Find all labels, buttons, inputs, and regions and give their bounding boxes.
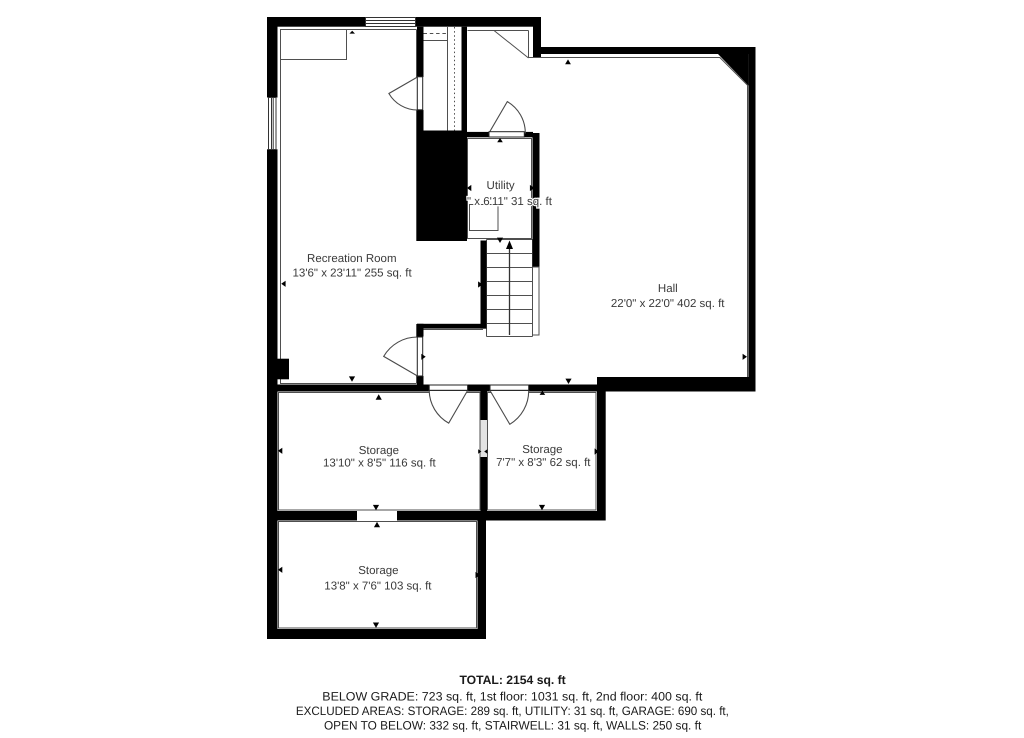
svg-text:7'7" x 8'3" 62 sq. ft: 7'7" x 8'3" 62 sq. ft	[496, 457, 591, 469]
svg-text:22'0" x 22'0" 402 sq. ft: 22'0" x 22'0" 402 sq. ft	[611, 298, 725, 310]
svg-text:" x 6'11" 31 sq. ft: " x 6'11" 31 sq. ft	[467, 196, 553, 208]
svg-text:13'10" x 8'5" 116 sq. ft: 13'10" x 8'5" 116 sq. ft	[323, 458, 437, 470]
svg-text:BELOW GRADE: 723 sq. ft, 1st f: BELOW GRADE: 723 sq. ft, 1st floor: 1031…	[322, 690, 703, 704]
svg-text:Utility: Utility	[487, 180, 515, 192]
svg-text:13'6" x 23'11" 255 sq. ft: 13'6" x 23'11" 255 sq. ft	[293, 268, 413, 280]
svg-text:EXCLUDED AREAS: STORAGE: 289 s: EXCLUDED AREAS: STORAGE: 289 sq. ft, UTI…	[296, 704, 729, 718]
svg-text:Storage: Storage	[358, 565, 398, 577]
svg-text:TOTAL: 2154 sq. ft: TOTAL: 2154 sq. ft	[459, 673, 565, 687]
svg-text:Recreation Room: Recreation Room	[307, 253, 396, 265]
svg-text:Storage: Storage	[359, 445, 399, 457]
svg-text:13'8" x 7'6" 103 sq. ft: 13'8" x 7'6" 103 sq. ft	[324, 580, 432, 592]
svg-text:OPEN TO BELOW: 332 sq. ft, STA: OPEN TO BELOW: 332 sq. ft, STAIRWELL: 31…	[324, 718, 702, 732]
svg-text:Storage: Storage	[522, 444, 562, 456]
svg-text:Hall: Hall	[658, 283, 678, 295]
